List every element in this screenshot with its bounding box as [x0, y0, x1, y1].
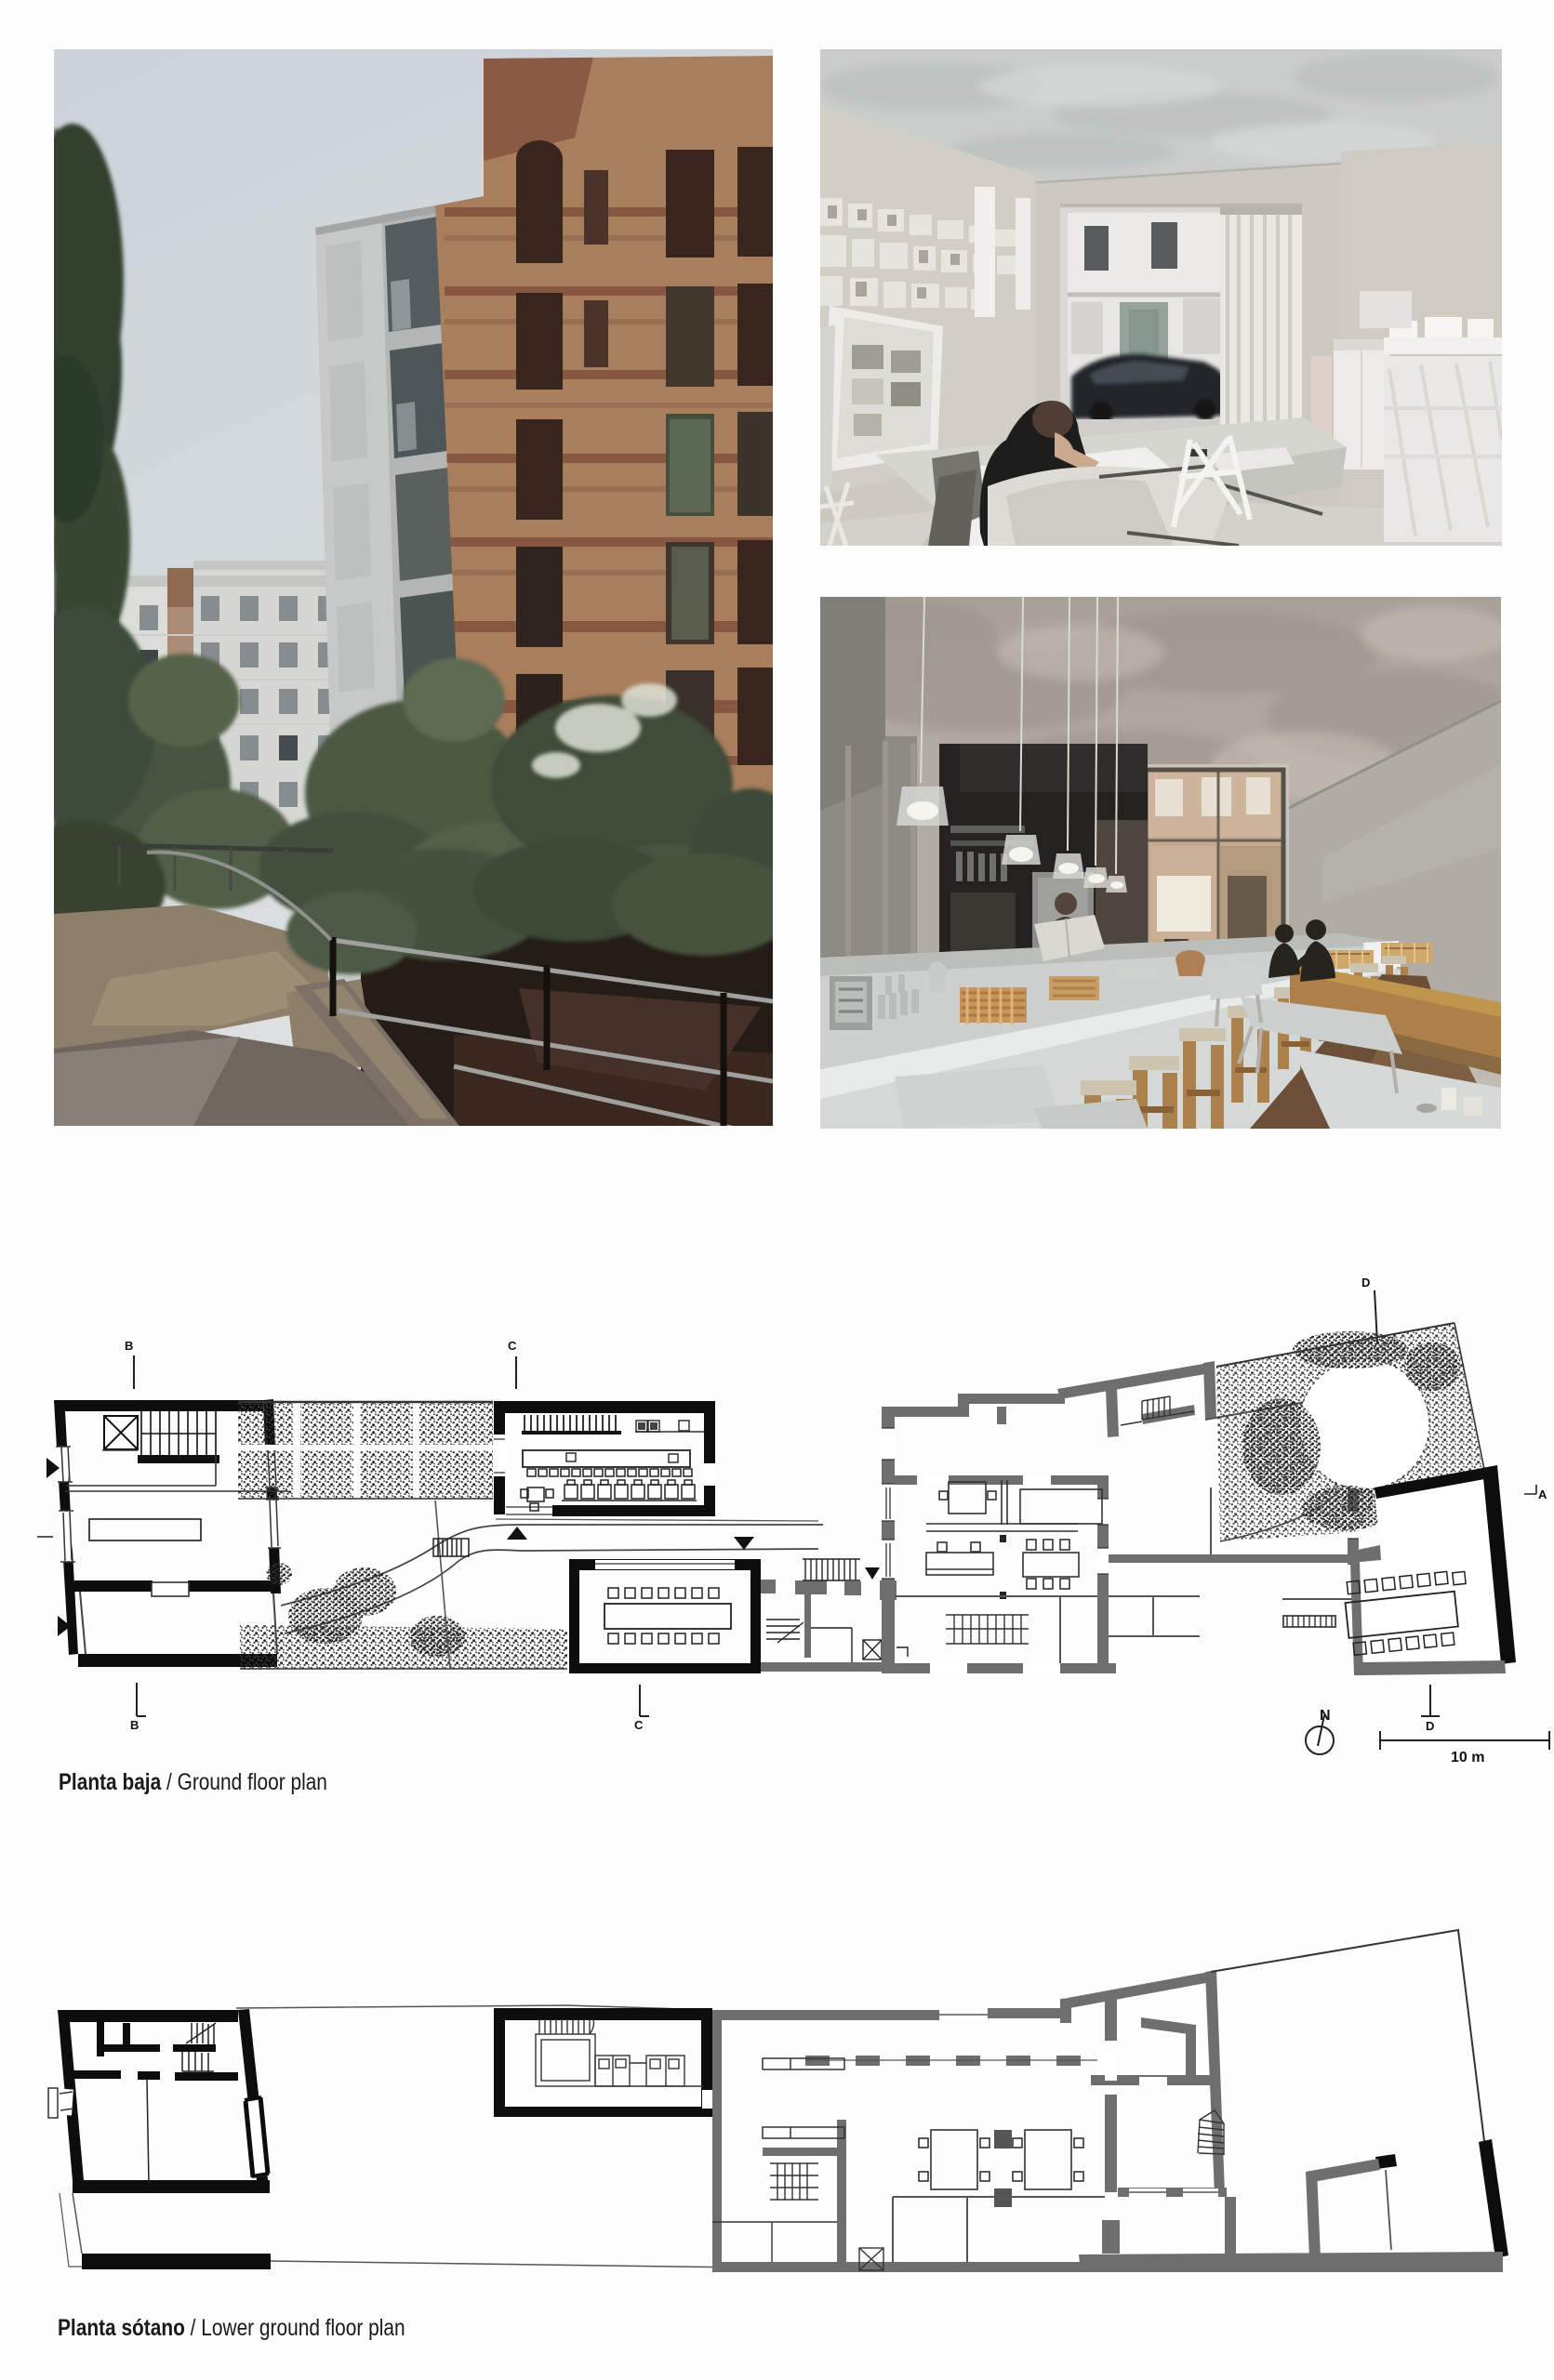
- svg-text:D: D: [1361, 1276, 1370, 1289]
- svg-text:10 m: 10 m: [1451, 1750, 1484, 1765]
- svg-text:D: D: [1426, 1719, 1434, 1733]
- svg-text:C: C: [508, 1339, 517, 1353]
- svg-text:C: C: [634, 1718, 644, 1732]
- svg-text:N: N: [1320, 1708, 1331, 1724]
- svg-text:B: B: [125, 1339, 133, 1353]
- svg-text:B: B: [130, 1718, 139, 1732]
- svg-text:A: A: [1538, 1487, 1547, 1501]
